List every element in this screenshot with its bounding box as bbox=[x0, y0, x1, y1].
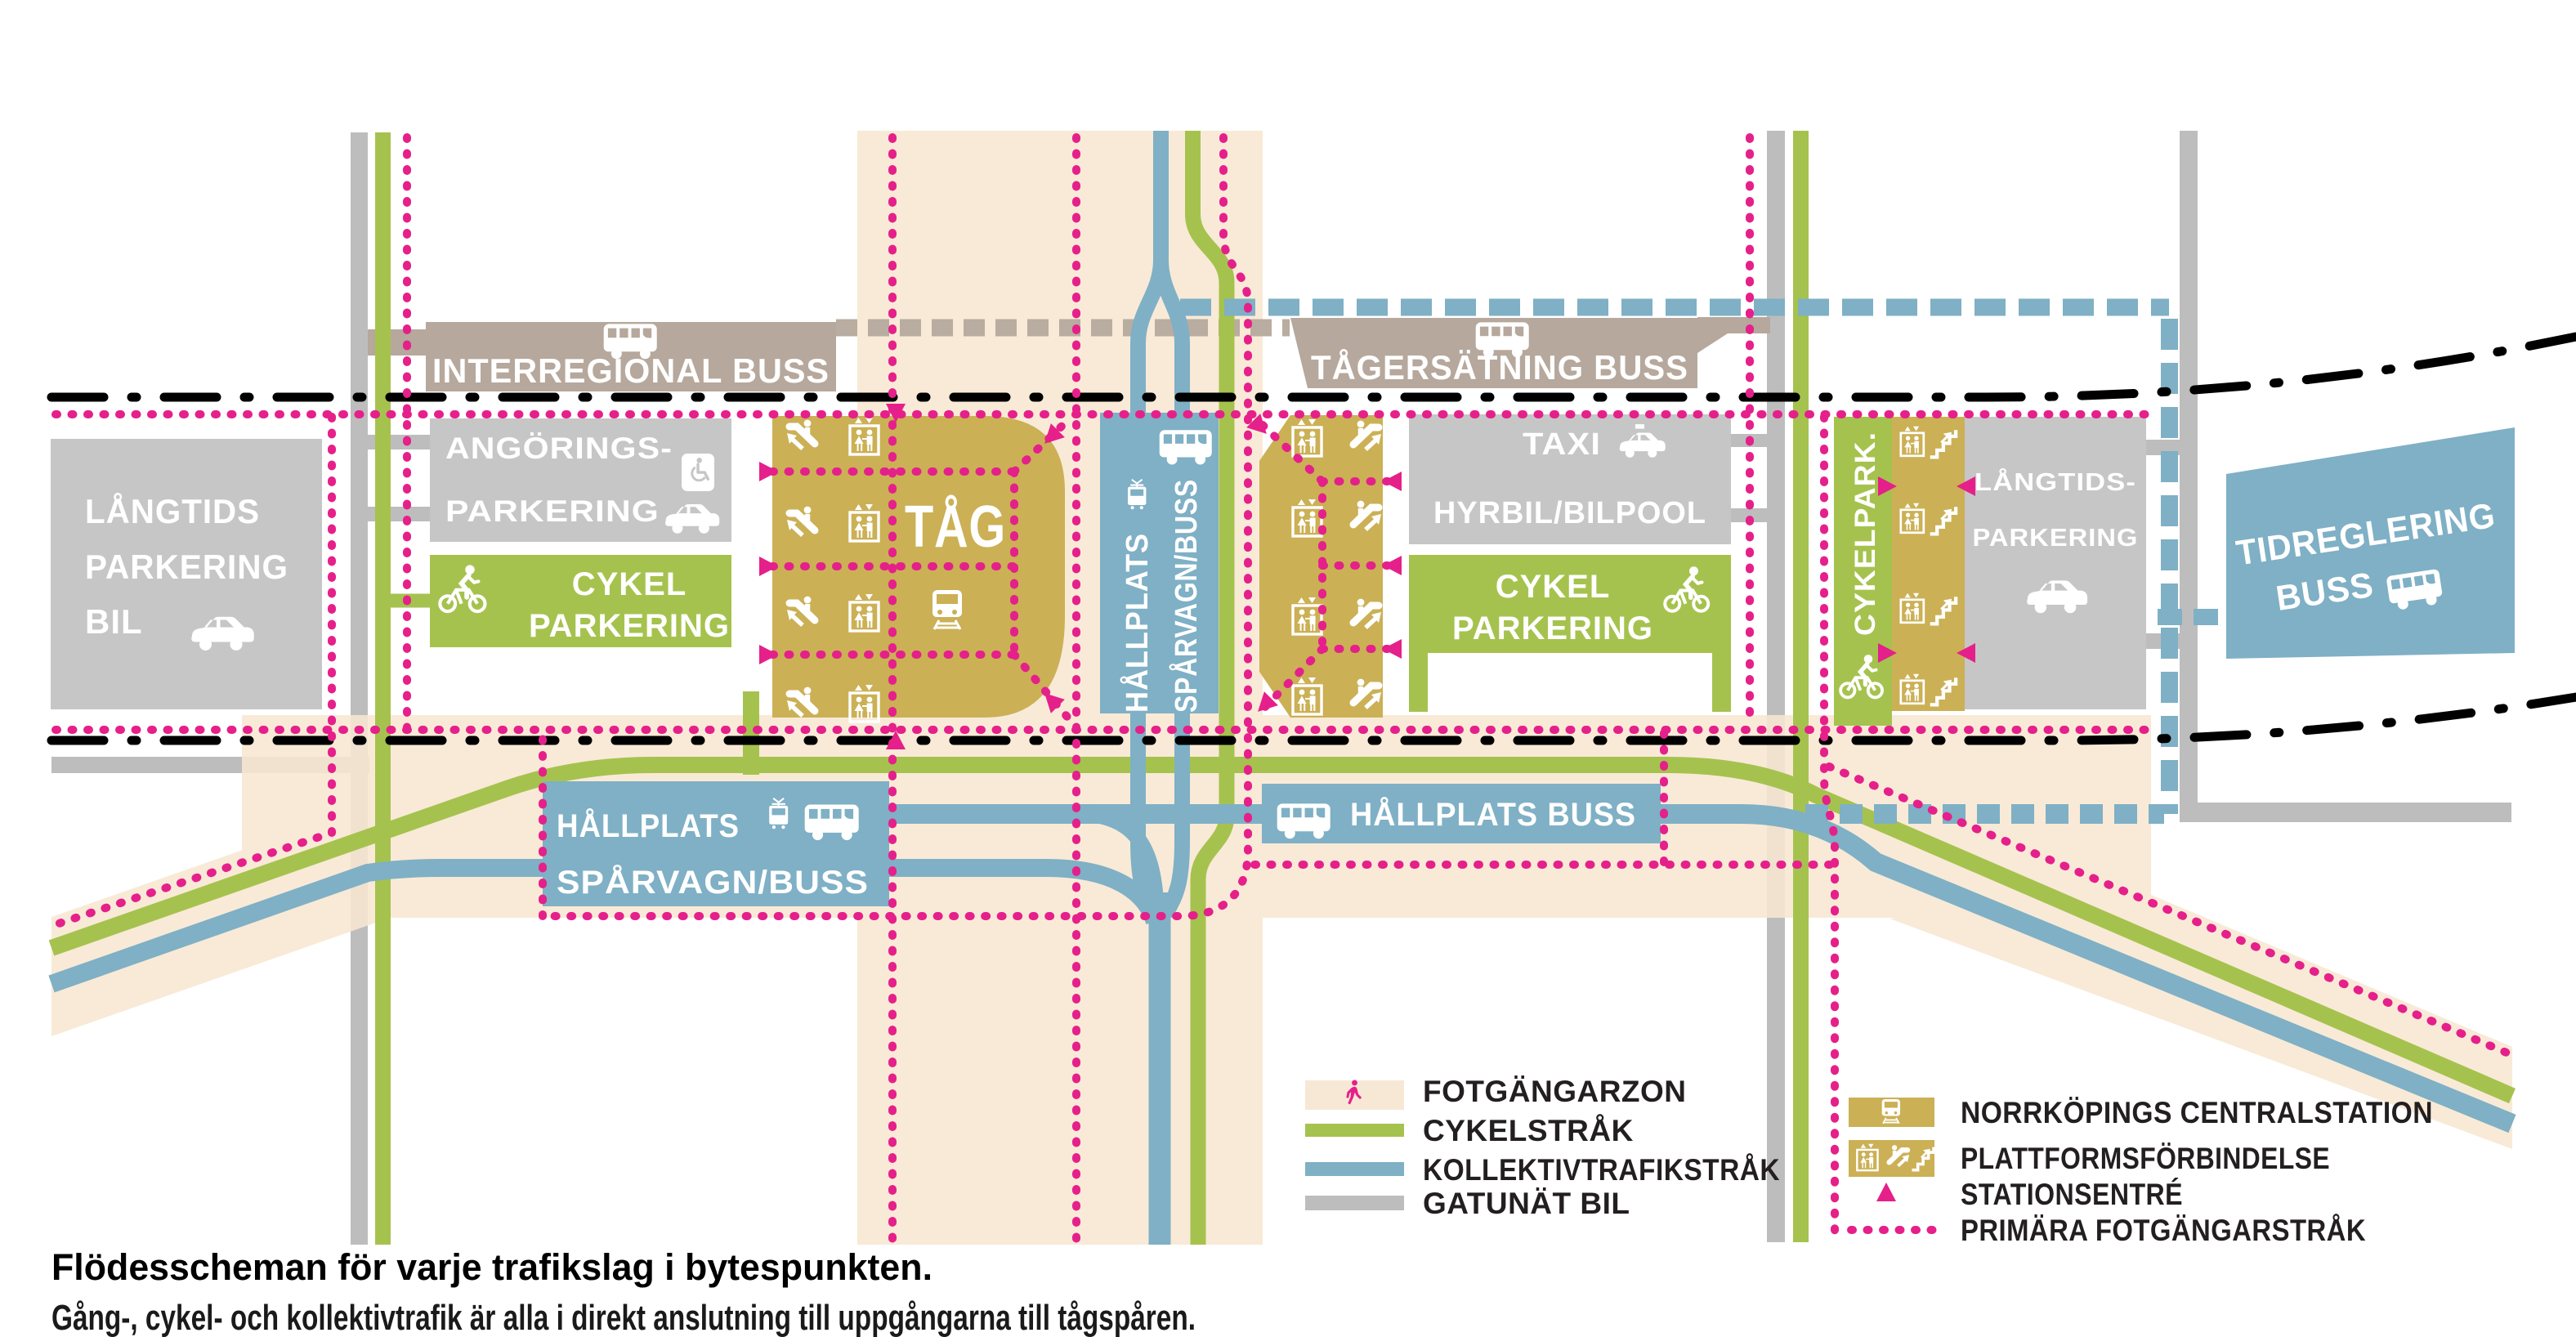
svg-text:NORRKÖPINGS CENTRALSTATION: NORRKÖPINGS CENTRALSTATION bbox=[1961, 1096, 2433, 1129]
svg-text:PARKERING: PARKERING bbox=[445, 494, 660, 528]
svg-text:LÅNGTIDS-: LÅNGTIDS- bbox=[1974, 467, 2136, 496]
svg-text:TAXI: TAXI bbox=[1523, 427, 1601, 462]
svg-text:BIL: BIL bbox=[85, 602, 143, 641]
svg-text:Flödesscheman för varje trafik: Flödesscheman för varje trafikslag i byt… bbox=[51, 1246, 932, 1288]
svg-text:CYKEL: CYKEL bbox=[572, 566, 687, 602]
svg-text:HÅLLPLATS: HÅLLPLATS bbox=[557, 807, 740, 844]
svg-text:PARKERING: PARKERING bbox=[1973, 523, 2139, 552]
svg-text:CYKELSTRÅK: CYKELSTRÅK bbox=[1423, 1114, 1634, 1147]
svg-text:SPÅRVAGN/BUSS: SPÅRVAGN/BUSS bbox=[557, 864, 869, 901]
svg-text:PLATTFORMSFÖRBINDELSE: PLATTFORMSFÖRBINDELSE bbox=[1961, 1142, 2330, 1175]
svg-text:PARKERING: PARKERING bbox=[85, 548, 288, 586]
svg-text:TÅGERSÄTNING BUSS: TÅGERSÄTNING BUSS bbox=[1311, 348, 1688, 387]
svg-text:LÅNGTIDS: LÅNGTIDS bbox=[85, 492, 260, 530]
svg-text:Gång-, cykel- och kollektivtra: Gång-, cykel- och kollektivtrafik är all… bbox=[51, 1298, 1196, 1337]
svg-text:PRIMÄRA FOTGÄNGARSTRÅK: PRIMÄRA FOTGÄNGARSTRÅK bbox=[1961, 1214, 2366, 1247]
svg-text:PARKERING: PARKERING bbox=[529, 608, 730, 644]
svg-text:ANGÖRINGS-: ANGÖRINGS- bbox=[445, 432, 673, 465]
svg-text:HÅLLPLATS: HÅLLPLATS bbox=[1119, 533, 1155, 713]
svg-text:HÅLLPLATS BUSS: HÅLLPLATS BUSS bbox=[1350, 796, 1636, 833]
svg-text:GATUNÄT BIL: GATUNÄT BIL bbox=[1423, 1187, 1630, 1220]
svg-text:KOLLEKTIVTRAFIKSTRÅK: KOLLEKTIVTRAFIKSTRÅK bbox=[1423, 1153, 1780, 1187]
svg-text:CYKEL: CYKEL bbox=[1496, 569, 1611, 605]
svg-text:STATIONSENTRÉ: STATIONSENTRÉ bbox=[1961, 1178, 2183, 1211]
svg-text:TÅG: TÅG bbox=[905, 494, 1006, 560]
svg-text:SPÅRVAGN/BUSS: SPÅRVAGN/BUSS bbox=[1168, 479, 1204, 713]
svg-text:HYRBIL/BILPOOL: HYRBIL/BILPOOL bbox=[1433, 496, 1706, 530]
svg-text:FOTGÄNGARZON: FOTGÄNGARZON bbox=[1423, 1075, 1687, 1108]
svg-text:INTERREGIONAL BUSS: INTERREGIONAL BUSS bbox=[432, 351, 830, 390]
svg-text:CYKELPARK.: CYKELPARK. bbox=[1849, 432, 1881, 636]
svg-text:PARKERING: PARKERING bbox=[1452, 610, 1653, 646]
